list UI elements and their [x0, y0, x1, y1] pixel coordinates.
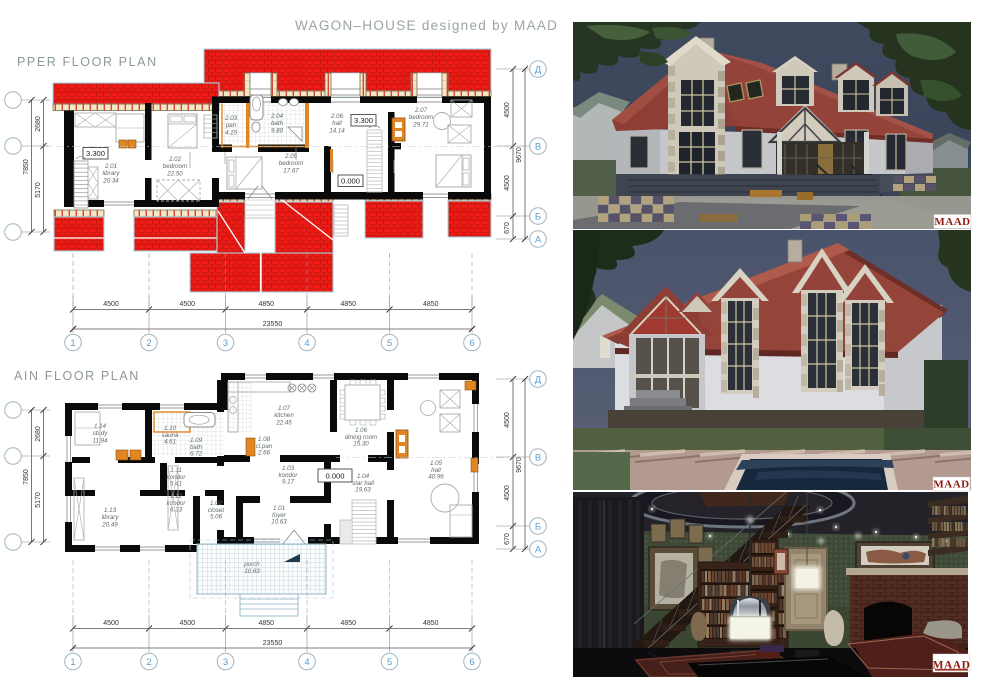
svg-text:2680: 2680	[35, 116, 42, 132]
svg-text:20.49: 20.49	[101, 521, 118, 528]
svg-text:5: 5	[387, 338, 392, 349]
svg-text:17.67: 17.67	[283, 167, 299, 174]
svg-text:2.03: 2.03	[224, 115, 238, 122]
svg-text:14.14: 14.14	[329, 127, 345, 134]
svg-text:3: 3	[223, 657, 228, 668]
svg-text:9.17: 9.17	[282, 479, 295, 486]
svg-text:670: 670	[504, 222, 511, 234]
svg-text:4500: 4500	[504, 412, 511, 428]
svg-text:WAGON–HOUSE designed by MAAD: WAGON–HOUSE designed by MAAD	[295, 18, 558, 33]
svg-text:29.71: 29.71	[412, 121, 428, 128]
svg-text:4850: 4850	[340, 620, 356, 627]
svg-text:3.300: 3.300	[354, 116, 373, 125]
svg-text:6: 6	[469, 657, 474, 668]
svg-text:library: library	[102, 514, 120, 521]
svg-text:pan: pan	[225, 122, 237, 129]
svg-text:5: 5	[387, 657, 392, 668]
svg-text:23550: 23550	[263, 640, 283, 647]
svg-text:4850: 4850	[423, 620, 439, 627]
svg-text:А: А	[535, 544, 542, 555]
svg-text:9670: 9670	[516, 457, 523, 473]
svg-text:4500: 4500	[103, 620, 119, 627]
svg-text:4: 4	[304, 657, 309, 668]
svg-text:AIN FLOOR PLAN: AIN FLOOR PLAN	[14, 369, 140, 383]
svg-text:bath: bath	[271, 120, 284, 127]
svg-text:4: 4	[304, 338, 309, 349]
svg-text:0.000: 0.000	[325, 472, 344, 481]
svg-text:4850: 4850	[340, 301, 356, 308]
svg-text:А: А	[535, 234, 542, 245]
svg-text:1.13: 1.13	[104, 507, 117, 514]
svg-text:9670: 9670	[516, 147, 523, 163]
svg-text:library: library	[103, 170, 121, 177]
svg-text:1: 1	[70, 657, 75, 668]
svg-text:23550: 23550	[263, 321, 283, 328]
svg-text:3.300: 3.300	[86, 149, 105, 158]
svg-text:Д: Д	[535, 374, 542, 385]
svg-text:Б: Б	[535, 521, 541, 532]
svg-text:7850: 7850	[23, 159, 30, 175]
svg-text:4500: 4500	[179, 301, 195, 308]
svg-text:15.30: 15.30	[353, 441, 369, 448]
svg-text:9.80: 9.80	[271, 127, 284, 134]
svg-text:2680: 2680	[35, 426, 42, 442]
svg-text:6.72: 6.72	[190, 451, 203, 458]
svg-text:4500: 4500	[504, 102, 511, 118]
svg-text:22.50: 22.50	[166, 170, 183, 177]
svg-text:3: 3	[223, 338, 228, 349]
svg-text:2.01: 2.01	[104, 163, 117, 170]
svg-text:4500: 4500	[504, 485, 511, 501]
svg-text:10.63: 10.63	[271, 519, 287, 526]
svg-text:2: 2	[146, 338, 151, 349]
svg-text:7850: 7850	[23, 469, 30, 485]
svg-text:5170: 5170	[35, 182, 42, 198]
svg-text:hall: hall	[332, 120, 342, 127]
svg-text:0.000: 0.000	[341, 177, 360, 186]
svg-text:bedroom: bedroom	[279, 160, 303, 167]
svg-text:2.05: 2.05	[284, 153, 298, 160]
svg-text:1: 1	[70, 338, 75, 349]
svg-text:2.06: 2.06	[330, 113, 344, 120]
svg-text:2.04: 2.04	[270, 113, 284, 120]
svg-text:В: В	[535, 141, 541, 152]
svg-text:4850: 4850	[258, 620, 274, 627]
svg-text:2: 2	[146, 657, 151, 668]
svg-text:4.15: 4.15	[225, 129, 238, 136]
svg-text:2.66: 2.66	[257, 450, 271, 457]
svg-text:20.34: 20.34	[102, 177, 119, 184]
svg-text:В: В	[535, 452, 541, 463]
svg-text:MAAD: MAAD	[933, 479, 969, 491]
svg-text:2.07: 2.07	[414, 107, 428, 114]
svg-text:19.63: 19.63	[355, 487, 371, 494]
svg-text:4850: 4850	[258, 301, 274, 308]
svg-text:4850: 4850	[423, 301, 439, 308]
svg-text:Д: Д	[535, 64, 542, 75]
svg-text:670: 670	[504, 533, 511, 545]
svg-text:6.33: 6.33	[170, 507, 183, 514]
svg-text:bedroom: bedroom	[163, 163, 187, 170]
svg-text:5.06: 5.06	[210, 514, 223, 521]
svg-text:4500: 4500	[179, 620, 195, 627]
svg-text:2.02: 2.02	[168, 156, 182, 163]
svg-text:PPER FLOOR PLAN: PPER FLOOR PLAN	[17, 55, 158, 69]
svg-text:40.96: 40.96	[428, 474, 444, 481]
svg-text:6: 6	[469, 338, 474, 349]
svg-text:Б: Б	[535, 211, 541, 222]
svg-text:kitchen: kitchen	[274, 412, 294, 419]
svg-text:MAAD: MAAD	[934, 216, 970, 228]
svg-text:6.41: 6.41	[170, 481, 182, 488]
svg-text:1.07: 1.07	[278, 405, 291, 412]
svg-text:10.63: 10.63	[244, 568, 260, 575]
svg-text:4500: 4500	[103, 301, 119, 308]
svg-text:4.61: 4.61	[164, 439, 176, 446]
svg-text:22.45: 22.45	[275, 419, 292, 426]
svg-text:4500: 4500	[504, 175, 511, 191]
svg-text:bedroom: bedroom	[409, 114, 433, 121]
svg-text:5170: 5170	[35, 492, 42, 508]
